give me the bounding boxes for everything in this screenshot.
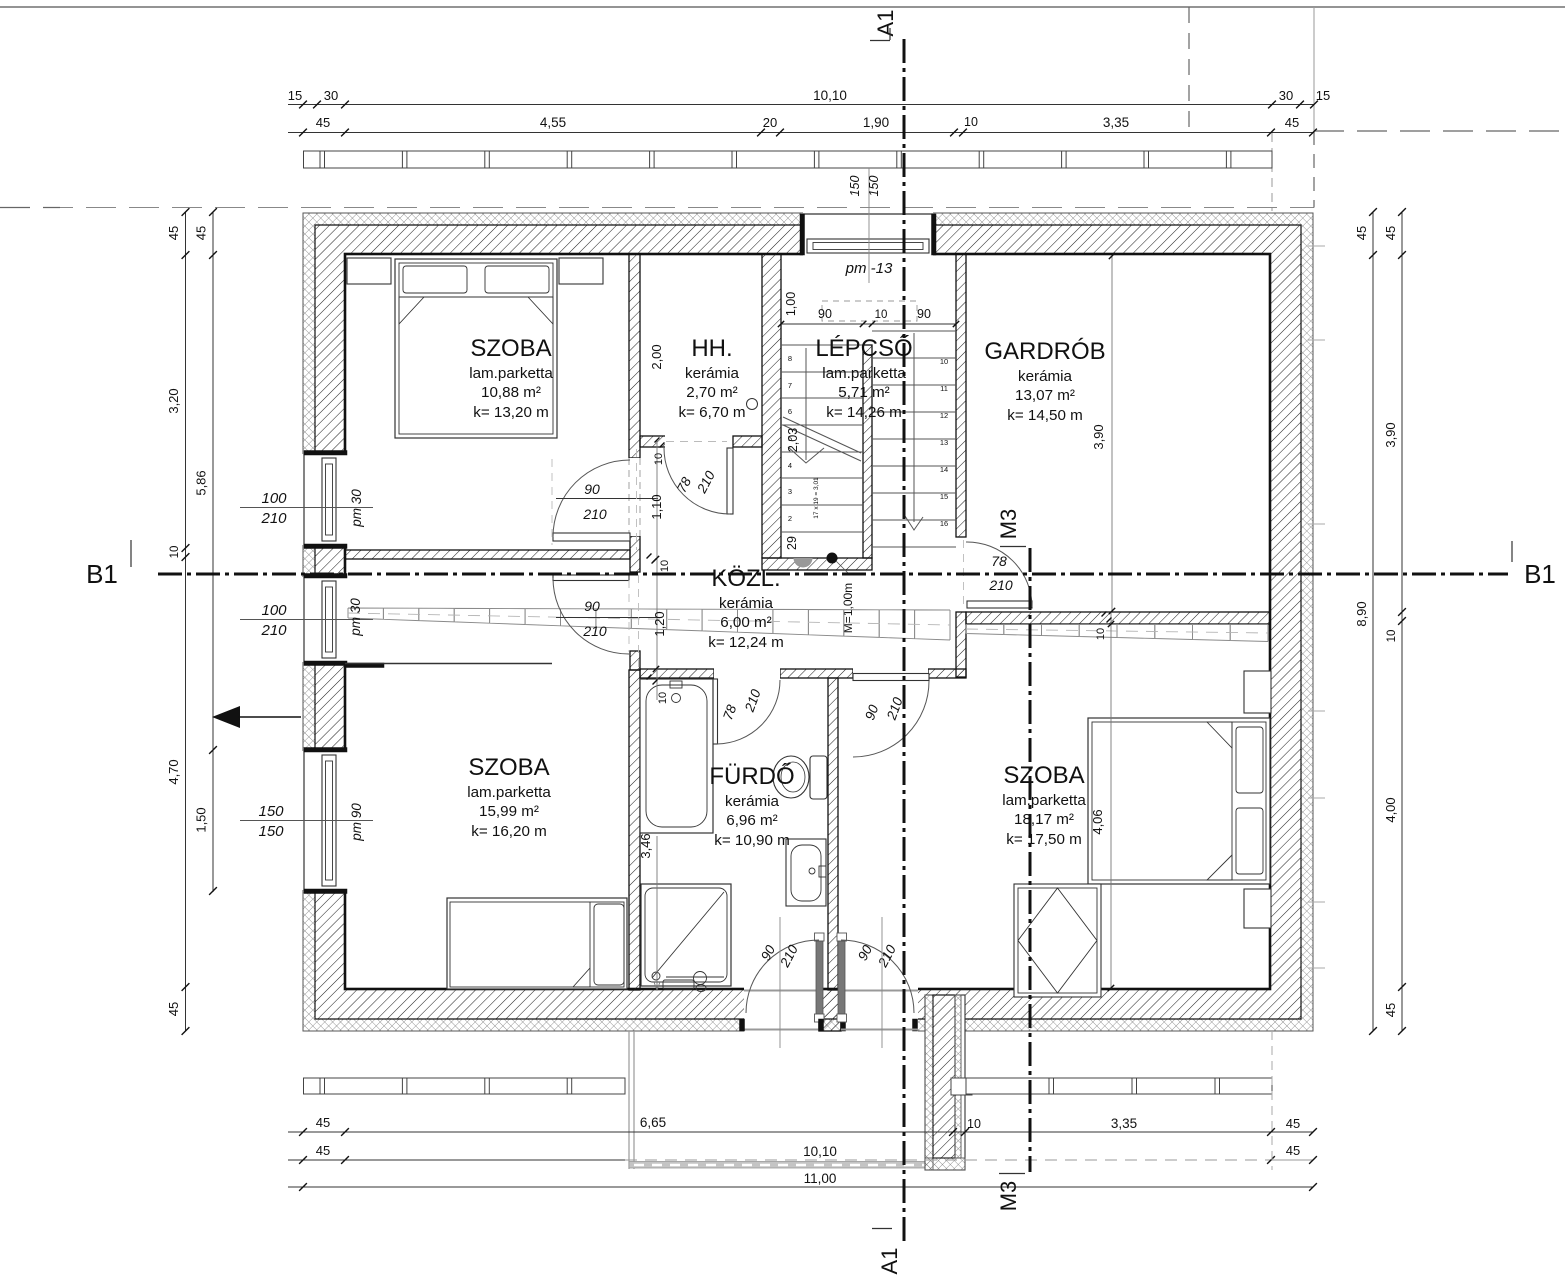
svg-text:kerámia: kerámia bbox=[1018, 368, 1073, 385]
svg-text:k= 14,26 m: k= 14,26 m bbox=[826, 404, 902, 421]
svg-text:M3: M3 bbox=[996, 1181, 1021, 1212]
svg-text:14: 14 bbox=[940, 465, 948, 474]
svg-text:100: 100 bbox=[261, 602, 287, 619]
svg-text:12: 12 bbox=[940, 411, 948, 420]
svg-text:45: 45 bbox=[1285, 115, 1299, 130]
svg-text:20: 20 bbox=[763, 115, 777, 130]
svg-text:30: 30 bbox=[324, 88, 338, 103]
svg-text:15,99 m²: 15,99 m² bbox=[479, 803, 539, 820]
svg-text:kerámia: kerámia bbox=[685, 365, 740, 382]
svg-text:45: 45 bbox=[1383, 226, 1398, 240]
svg-text:30: 30 bbox=[1279, 88, 1293, 103]
svg-text:GARDRÓB: GARDRÓB bbox=[984, 338, 1105, 365]
svg-text:45: 45 bbox=[1286, 1116, 1300, 1131]
svg-text:B1: B1 bbox=[86, 559, 118, 589]
svg-text:k= 10,90 m: k= 10,90 m bbox=[714, 832, 790, 849]
svg-text:3,90: 3,90 bbox=[1383, 422, 1398, 447]
svg-text:2,70 m²: 2,70 m² bbox=[686, 384, 738, 401]
svg-text:210: 210 bbox=[988, 577, 1013, 593]
svg-text:1,50: 1,50 bbox=[194, 807, 209, 832]
svg-text:lam.parketta: lam.parketta bbox=[822, 365, 906, 382]
svg-text:8,90: 8,90 bbox=[1354, 601, 1369, 626]
svg-text:45: 45 bbox=[1383, 1003, 1398, 1017]
svg-text:B1: B1 bbox=[1524, 559, 1556, 589]
svg-text:10: 10 bbox=[657, 692, 669, 704]
svg-text:90: 90 bbox=[584, 598, 600, 614]
svg-text:SZOBA: SZOBA bbox=[1003, 762, 1084, 789]
svg-text:6,00 m²: 6,00 m² bbox=[720, 614, 772, 631]
svg-text:45: 45 bbox=[166, 226, 181, 240]
svg-text:k= 17,50 m: k= 17,50 m bbox=[1006, 831, 1082, 848]
svg-text:HH.: HH. bbox=[691, 335, 732, 362]
svg-text:15: 15 bbox=[1316, 88, 1330, 103]
svg-text:11,00: 11,00 bbox=[804, 1171, 837, 1186]
svg-text:11: 11 bbox=[940, 384, 948, 393]
svg-text:k= 6,70 m: k= 6,70 m bbox=[678, 404, 745, 421]
svg-text:5,71 m²: 5,71 m² bbox=[838, 384, 890, 401]
svg-text:6: 6 bbox=[788, 407, 792, 416]
svg-text:15: 15 bbox=[288, 88, 302, 103]
svg-text:SZOBA: SZOBA bbox=[468, 754, 549, 781]
svg-text:kerámia: kerámia bbox=[719, 595, 774, 612]
svg-text:18,17 m²: 18,17 m² bbox=[1014, 811, 1074, 828]
svg-text:1,10: 1,10 bbox=[649, 494, 664, 519]
svg-text:lam.parketta: lam.parketta bbox=[1002, 792, 1086, 809]
svg-text:3: 3 bbox=[788, 487, 792, 496]
svg-text:LÉPCSŐ: LÉPCSŐ bbox=[815, 335, 912, 362]
svg-text:4,70: 4,70 bbox=[166, 759, 181, 784]
svg-text:13: 13 bbox=[940, 438, 948, 447]
svg-text:lam.parketta: lam.parketta bbox=[469, 365, 553, 382]
svg-text:10: 10 bbox=[1386, 630, 1398, 643]
svg-text:150: 150 bbox=[258, 803, 284, 820]
svg-text:3,20: 3,20 bbox=[166, 388, 181, 413]
svg-text:5,86: 5,86 bbox=[194, 470, 209, 495]
svg-text:10: 10 bbox=[659, 560, 671, 572]
svg-text:10,88 m²: 10,88 m² bbox=[481, 384, 541, 401]
svg-text:3,90: 3,90 bbox=[1091, 424, 1106, 449]
svg-text:k= 13,20 m: k= 13,20 m bbox=[473, 404, 549, 421]
svg-text:2,03: 2,03 bbox=[786, 428, 800, 452]
svg-text:90: 90 bbox=[818, 307, 832, 321]
svg-text:2,00: 2,00 bbox=[649, 344, 664, 369]
svg-text:17 x 19 = 3,01: 17 x 19 = 3,01 bbox=[813, 477, 820, 519]
svg-text:A1: A1 bbox=[877, 1248, 902, 1275]
svg-text:10,10: 10,10 bbox=[803, 1144, 837, 1159]
svg-text:16: 16 bbox=[940, 519, 948, 528]
svg-text:78: 78 bbox=[991, 553, 1007, 569]
svg-text:1,20: 1,20 bbox=[652, 611, 667, 636]
svg-text:10: 10 bbox=[169, 546, 181, 559]
svg-text:4,06: 4,06 bbox=[1090, 809, 1105, 834]
svg-text:k= 12,24 m: k= 12,24 m bbox=[708, 634, 784, 651]
svg-text:45: 45 bbox=[1286, 1143, 1300, 1158]
svg-text:k= 14,50 m: k= 14,50 m bbox=[1007, 407, 1083, 424]
svg-text:2: 2 bbox=[788, 514, 792, 523]
svg-text:45: 45 bbox=[166, 1002, 181, 1016]
svg-text:A1: A1 bbox=[873, 10, 898, 37]
svg-text:150: 150 bbox=[258, 823, 284, 840]
svg-text:10: 10 bbox=[875, 309, 888, 321]
svg-text:3,35: 3,35 bbox=[1103, 115, 1129, 130]
svg-text:29: 29 bbox=[785, 536, 799, 550]
svg-text:pm 30: pm 30 bbox=[349, 489, 364, 528]
svg-text:45: 45 bbox=[316, 1115, 330, 1130]
svg-text:3,35: 3,35 bbox=[1111, 1116, 1137, 1131]
svg-text:150: 150 bbox=[848, 176, 862, 197]
svg-text:13,07 m²: 13,07 m² bbox=[1015, 387, 1075, 404]
svg-text:10: 10 bbox=[653, 453, 665, 465]
svg-text:45: 45 bbox=[194, 226, 209, 240]
svg-text:210: 210 bbox=[582, 506, 607, 522]
svg-text:6,96 m²: 6,96 m² bbox=[726, 812, 778, 829]
svg-text:FÜRDŐ: FÜRDŐ bbox=[709, 763, 794, 790]
svg-text:4,00: 4,00 bbox=[1383, 797, 1398, 822]
svg-text:3,46: 3,46 bbox=[638, 833, 653, 858]
svg-text:90: 90 bbox=[917, 307, 931, 321]
svg-text:6,65: 6,65 bbox=[640, 1115, 666, 1130]
svg-text:pm 30: pm 30 bbox=[348, 598, 363, 637]
svg-text:210: 210 bbox=[260, 622, 287, 639]
svg-text:4: 4 bbox=[788, 461, 792, 470]
svg-text:1,90: 1,90 bbox=[863, 115, 889, 130]
svg-text:15: 15 bbox=[940, 492, 948, 501]
svg-text:KÖZL.: KÖZL. bbox=[711, 565, 780, 592]
svg-text:4,55: 4,55 bbox=[540, 115, 566, 130]
svg-text:10: 10 bbox=[1095, 628, 1107, 640]
svg-text:lam.parketta: lam.parketta bbox=[467, 784, 551, 801]
svg-text:210: 210 bbox=[582, 623, 607, 639]
svg-text:100: 100 bbox=[261, 490, 287, 507]
svg-text:SZOBA: SZOBA bbox=[470, 335, 551, 362]
svg-text:210: 210 bbox=[260, 510, 287, 527]
svg-text:kerámia: kerámia bbox=[725, 793, 780, 810]
svg-text:10: 10 bbox=[967, 1117, 981, 1131]
svg-text:pm 90: pm 90 bbox=[349, 803, 364, 842]
svg-text:10: 10 bbox=[940, 357, 948, 366]
svg-text:7: 7 bbox=[788, 381, 792, 390]
svg-text:1,00: 1,00 bbox=[784, 292, 798, 316]
svg-text:45: 45 bbox=[316, 1143, 330, 1158]
svg-text:10: 10 bbox=[964, 115, 978, 129]
svg-text:10,10: 10,10 bbox=[813, 88, 847, 103]
svg-text:k= 16,20 m: k= 16,20 m bbox=[471, 823, 547, 840]
svg-text:150: 150 bbox=[867, 176, 881, 197]
svg-text:8: 8 bbox=[788, 354, 792, 363]
svg-text:45: 45 bbox=[1354, 226, 1369, 240]
svg-text:M3: M3 bbox=[996, 509, 1021, 540]
svg-text:45: 45 bbox=[316, 115, 330, 130]
svg-text:90: 90 bbox=[584, 481, 600, 497]
svg-text:M=1,00m: M=1,00m bbox=[841, 583, 855, 633]
